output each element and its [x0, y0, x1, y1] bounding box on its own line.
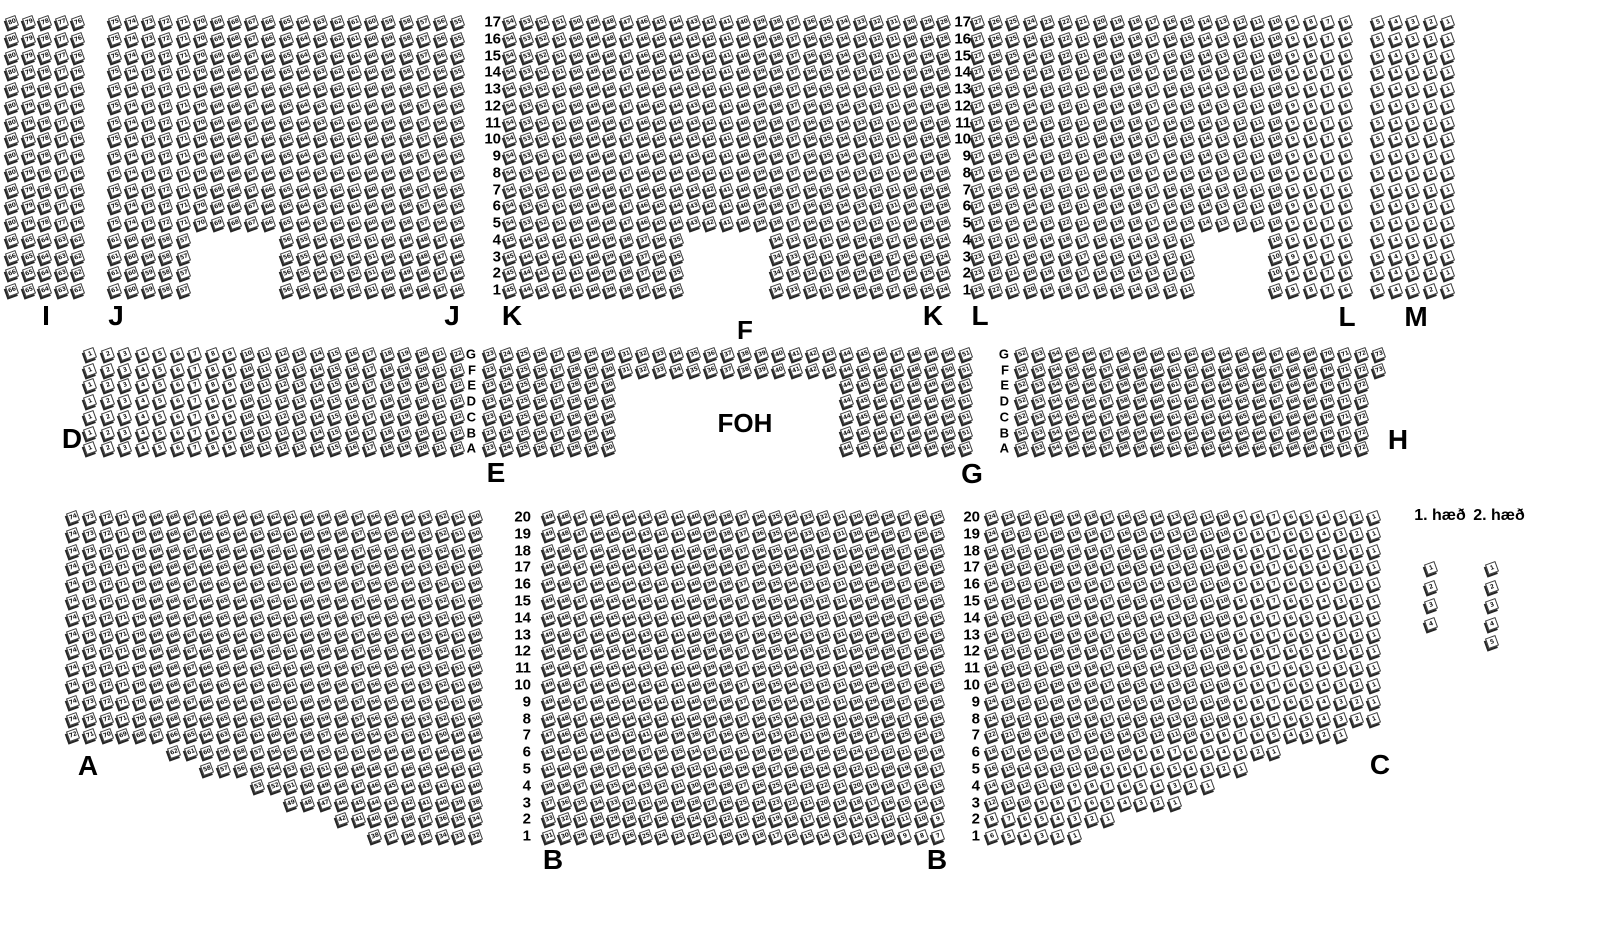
seat[interactable]: 53: [1032, 347, 1046, 361]
seat[interactable]: 64: [234, 695, 248, 709]
seat[interactable]: 68: [1287, 441, 1301, 455]
seat[interactable]: 47: [574, 712, 588, 726]
seat[interactable]: 47: [620, 15, 634, 29]
seat[interactable]: 36: [804, 48, 818, 62]
seat[interactable]: 39: [753, 48, 767, 62]
seat[interactable]: 22: [1058, 32, 1072, 46]
seat[interactable]: 73: [83, 678, 97, 692]
seat[interactable]: 15: [1181, 132, 1195, 146]
seat[interactable]: 4: [1388, 32, 1402, 46]
seat[interactable]: 23: [1002, 544, 1016, 558]
seat[interactable]: 60: [365, 182, 379, 196]
seat[interactable]: 42: [655, 594, 669, 608]
seat[interactable]: 47: [620, 32, 634, 46]
seat[interactable]: 67: [184, 644, 198, 658]
seat[interactable]: 53: [520, 15, 534, 29]
seat[interactable]: 16: [1163, 32, 1177, 46]
seat[interactable]: 6: [1284, 510, 1298, 524]
seat[interactable]: 32: [817, 628, 831, 642]
seat[interactable]: 68: [167, 527, 181, 541]
seat[interactable]: 6: [1338, 82, 1352, 96]
seat[interactable]: 21: [1076, 15, 1090, 29]
seat[interactable]: 8: [1251, 527, 1265, 541]
seat[interactable]: 74: [125, 65, 139, 79]
seat[interactable]: 79: [21, 48, 35, 62]
seat[interactable]: 46: [874, 347, 888, 361]
seat[interactable]: 28: [882, 527, 896, 541]
seat[interactable]: 21: [866, 762, 880, 776]
seat[interactable]: 32: [817, 577, 831, 591]
seat[interactable]: 73: [142, 199, 156, 213]
seat[interactable]: 42: [703, 182, 717, 196]
seat[interactable]: 16: [345, 363, 359, 377]
seat[interactable]: 27: [736, 779, 750, 793]
seat[interactable]: 49: [452, 728, 466, 742]
seat[interactable]: 10: [1018, 796, 1032, 810]
seat[interactable]: 78: [38, 132, 52, 146]
seat[interactable]: 44: [623, 661, 637, 675]
seat[interactable]: 41: [720, 65, 734, 79]
seat[interactable]: 55: [451, 65, 465, 79]
seat[interactable]: 29: [585, 394, 599, 408]
seat[interactable]: 67: [245, 65, 259, 79]
seat[interactable]: 21: [704, 829, 718, 843]
seat[interactable]: 9: [1234, 695, 1248, 709]
seat[interactable]: 31: [619, 363, 633, 377]
seat[interactable]: 4: [1388, 233, 1402, 247]
seat[interactable]: 60: [365, 216, 379, 230]
seat[interactable]: 33: [801, 577, 815, 591]
seat[interactable]: 66: [1253, 363, 1267, 377]
seat[interactable]: 4: [1317, 712, 1331, 726]
seat[interactable]: 46: [637, 82, 651, 96]
seat[interactable]: 66: [262, 48, 276, 62]
seat[interactable]: 16: [1163, 82, 1177, 96]
seat[interactable]: 57: [417, 216, 431, 230]
seat[interactable]: 11: [1035, 779, 1049, 793]
seat[interactable]: 4: [1317, 628, 1331, 642]
seat[interactable]: 19: [1068, 510, 1082, 524]
seat[interactable]: 79: [21, 149, 35, 163]
seat[interactable]: 20: [415, 410, 429, 424]
seat[interactable]: 68: [167, 594, 181, 608]
seat[interactable]: 35: [820, 82, 834, 96]
seat[interactable]: 44: [670, 48, 684, 62]
seat[interactable]: 24: [985, 661, 999, 675]
seat[interactable]: 15: [1134, 712, 1148, 726]
seat[interactable]: 16: [1163, 65, 1177, 79]
seat[interactable]: 27: [971, 15, 985, 29]
seat[interactable]: 3: [1406, 82, 1420, 96]
seat[interactable]: 29: [736, 762, 750, 776]
seat[interactable]: 2: [1350, 594, 1364, 608]
seat[interactable]: 64: [38, 266, 52, 280]
seat[interactable]: 41: [720, 199, 734, 213]
seat[interactable]: 70: [194, 149, 208, 163]
seat[interactable]: 67: [245, 32, 259, 46]
seat[interactable]: 19: [1111, 99, 1125, 113]
seat[interactable]: 38: [620, 283, 634, 297]
seat[interactable]: 12: [1085, 745, 1099, 759]
seat[interactable]: 44: [520, 233, 534, 247]
seat[interactable]: 41: [672, 695, 686, 709]
seat[interactable]: 61: [108, 233, 122, 247]
seat[interactable]: 37: [787, 149, 801, 163]
seat[interactable]: 31: [672, 779, 686, 793]
seat[interactable]: 60: [365, 115, 379, 129]
seat[interactable]: 43: [823, 347, 837, 361]
seat[interactable]: 25: [931, 594, 945, 608]
seat[interactable]: 65: [279, 166, 293, 180]
seat[interactable]: 63: [314, 32, 328, 46]
seat[interactable]: 60: [365, 82, 379, 96]
seat[interactable]: 80: [5, 65, 19, 79]
seat[interactable]: 16: [1163, 15, 1177, 29]
seat[interactable]: 18: [1058, 249, 1072, 263]
seat[interactable]: 27: [639, 812, 653, 826]
seat[interactable]: 38: [720, 544, 734, 558]
seat[interactable]: 19: [1068, 611, 1082, 625]
seat[interactable]: 56: [279, 249, 293, 263]
seat[interactable]: 17: [1146, 65, 1160, 79]
seat[interactable]: 72: [100, 544, 114, 558]
seat[interactable]: 4: [1284, 728, 1298, 742]
seat[interactable]: 28: [937, 132, 951, 146]
seat[interactable]: 31: [834, 644, 848, 658]
seat[interactable]: 8: [1303, 48, 1317, 62]
seat[interactable]: 63: [251, 712, 265, 726]
seat[interactable]: 2: [100, 378, 114, 392]
seat[interactable]: 2: [1423, 249, 1437, 263]
seat[interactable]: 23: [834, 762, 848, 776]
seat[interactable]: 43: [687, 48, 701, 62]
seat[interactable]: 53: [520, 166, 534, 180]
seat[interactable]: 57: [417, 32, 431, 46]
seat[interactable]: 55: [451, 48, 465, 62]
seat[interactable]: 64: [297, 48, 311, 62]
seat[interactable]: 36: [753, 712, 767, 726]
seat[interactable]: 45: [653, 99, 667, 113]
seat[interactable]: 26: [817, 745, 831, 759]
seat[interactable]: 43: [687, 65, 701, 79]
seat[interactable]: 5: [1371, 216, 1385, 230]
seat[interactable]: 5: [1371, 166, 1385, 180]
seat[interactable]: 68: [167, 577, 181, 591]
seat[interactable]: 1: [1424, 561, 1438, 575]
seat[interactable]: 64: [38, 233, 52, 247]
seat[interactable]: 54: [301, 745, 315, 759]
seat[interactable]: 24: [1023, 216, 1037, 230]
seat[interactable]: 63: [251, 560, 265, 574]
seat[interactable]: 43: [607, 728, 621, 742]
seat[interactable]: 1: [1267, 745, 1281, 759]
seat[interactable]: 28: [882, 628, 896, 642]
seat[interactable]: 55: [385, 661, 399, 675]
seat[interactable]: 76: [71, 99, 85, 113]
seat[interactable]: 6: [1284, 661, 1298, 675]
seat[interactable]: 3: [1234, 745, 1248, 759]
seat[interactable]: 48: [603, 15, 617, 29]
seat[interactable]: 40: [737, 216, 751, 230]
seat[interactable]: 14: [1128, 266, 1142, 280]
seat[interactable]: 31: [834, 560, 848, 574]
seat[interactable]: 26: [915, 695, 929, 709]
seat[interactable]: 49: [586, 132, 600, 146]
seat[interactable]: 33: [854, 48, 868, 62]
seat[interactable]: 70: [194, 15, 208, 29]
seat[interactable]: 63: [1202, 394, 1216, 408]
seat[interactable]: 57: [352, 544, 366, 558]
seat[interactable]: 64: [234, 544, 248, 558]
seat[interactable]: 18: [1085, 644, 1099, 658]
seat[interactable]: 18: [1128, 132, 1142, 146]
seat[interactable]: 26: [988, 149, 1002, 163]
seat[interactable]: 14: [1151, 527, 1165, 541]
seat[interactable]: 10: [1217, 661, 1231, 675]
seat[interactable]: 76: [71, 32, 85, 46]
seat[interactable]: 60: [1151, 441, 1165, 455]
seat[interactable]: 33: [653, 363, 667, 377]
seat[interactable]: 65: [279, 199, 293, 213]
seat[interactable]: 48: [908, 378, 922, 392]
seat[interactable]: 15: [1111, 283, 1125, 297]
seat[interactable]: 13: [1134, 728, 1148, 742]
seat[interactable]: 28: [870, 249, 884, 263]
seat[interactable]: 32: [817, 527, 831, 541]
seat[interactable]: 60: [301, 661, 315, 675]
seat[interactable]: 25: [931, 661, 945, 675]
seat[interactable]: 14: [1198, 132, 1212, 146]
seat[interactable]: 19: [398, 410, 412, 424]
seat[interactable]: 4: [1388, 166, 1402, 180]
seat[interactable]: 46: [874, 378, 888, 392]
seat[interactable]: 14: [310, 410, 324, 424]
seat[interactable]: 49: [385, 745, 399, 759]
seat[interactable]: 15: [1134, 594, 1148, 608]
seat[interactable]: 13: [1168, 661, 1182, 675]
seat[interactable]: 73: [142, 15, 156, 29]
seat[interactable]: 12: [882, 812, 896, 826]
seat[interactable]: 9: [1234, 594, 1248, 608]
seat[interactable]: 73: [142, 132, 156, 146]
seat[interactable]: 5: [153, 425, 167, 439]
seat[interactable]: 15: [1035, 745, 1049, 759]
seat[interactable]: 44: [840, 441, 854, 455]
seat[interactable]: 54: [1049, 441, 1063, 455]
seat[interactable]: 71: [177, 32, 191, 46]
seat[interactable]: 2: [100, 347, 114, 361]
seat[interactable]: 2: [1424, 579, 1438, 593]
seat[interactable]: 65: [217, 611, 231, 625]
seat[interactable]: 16: [1018, 745, 1032, 759]
seat[interactable]: 34: [785, 695, 799, 709]
seat[interactable]: 72: [100, 577, 114, 591]
seat[interactable]: 17: [363, 441, 377, 455]
seat[interactable]: 72: [100, 695, 114, 709]
seat[interactable]: 11: [1201, 611, 1215, 625]
seat[interactable]: 52: [436, 510, 450, 524]
seat[interactable]: 16: [345, 347, 359, 361]
seat[interactable]: 48: [402, 745, 416, 759]
seat[interactable]: 10: [1217, 560, 1231, 574]
seat[interactable]: 46: [591, 544, 605, 558]
seat[interactable]: 40: [688, 577, 702, 591]
seat[interactable]: 49: [586, 182, 600, 196]
seat[interactable]: 19: [398, 378, 412, 392]
seat[interactable]: 7: [1321, 132, 1335, 146]
seat[interactable]: 49: [399, 283, 413, 297]
seat[interactable]: 40: [436, 796, 450, 810]
seat[interactable]: 47: [434, 266, 448, 280]
seat[interactable]: 52: [301, 762, 315, 776]
seat[interactable]: 50: [570, 99, 584, 113]
seat[interactable]: 40: [586, 233, 600, 247]
seat[interactable]: 13: [293, 441, 307, 455]
seat[interactable]: 25: [931, 560, 945, 574]
seat[interactable]: 2: [1423, 99, 1437, 113]
seat[interactable]: 43: [419, 779, 433, 793]
seat[interactable]: 16: [1118, 544, 1132, 558]
seat[interactable]: 73: [83, 544, 97, 558]
seat[interactable]: 21: [1002, 728, 1016, 742]
seat[interactable]: 39: [704, 628, 718, 642]
seat[interactable]: 21: [1035, 544, 1049, 558]
seat[interactable]: 14: [1198, 182, 1212, 196]
seat[interactable]: 51: [318, 762, 332, 776]
seat[interactable]: 1: [1367, 611, 1381, 625]
seat[interactable]: 78: [38, 182, 52, 196]
seat[interactable]: 23: [1041, 99, 1055, 113]
seat[interactable]: 58: [1117, 410, 1131, 424]
seat[interactable]: 11: [1201, 527, 1215, 541]
seat[interactable]: 12: [1233, 115, 1247, 129]
seat[interactable]: 46: [368, 779, 382, 793]
seat[interactable]: 35: [820, 149, 834, 163]
seat[interactable]: 49: [399, 266, 413, 280]
seat[interactable]: 7: [931, 829, 945, 843]
seat[interactable]: 30: [850, 712, 864, 726]
seat[interactable]: 62: [71, 249, 85, 263]
seat[interactable]: 1: [1101, 812, 1115, 826]
seat[interactable]: 13: [1168, 560, 1182, 574]
seat[interactable]: 31: [574, 812, 588, 826]
seat[interactable]: 53: [520, 99, 534, 113]
seat[interactable]: 16: [1118, 560, 1132, 574]
seat[interactable]: 16: [1093, 283, 1107, 297]
seat[interactable]: 25: [931, 628, 945, 642]
seat[interactable]: 80: [5, 182, 19, 196]
seat[interactable]: 38: [720, 712, 734, 726]
seat[interactable]: 66: [1253, 378, 1267, 392]
seat[interactable]: 59: [382, 132, 396, 146]
seat[interactable]: 12: [1233, 48, 1247, 62]
seat[interactable]: 71: [116, 695, 130, 709]
seat[interactable]: 3: [118, 425, 132, 439]
seat[interactable]: 65: [21, 283, 35, 297]
seat[interactable]: 73: [142, 216, 156, 230]
seat[interactable]: 54: [314, 266, 328, 280]
seat[interactable]: 11: [1201, 594, 1215, 608]
seat[interactable]: 55: [352, 728, 366, 742]
seat[interactable]: 74: [66, 544, 80, 558]
seat[interactable]: 37: [607, 762, 621, 776]
seat[interactable]: 18: [1128, 32, 1142, 46]
seat[interactable]: 52: [536, 32, 550, 46]
seat[interactable]: 58: [234, 745, 248, 759]
seat[interactable]: 66: [167, 728, 181, 742]
seat[interactable]: 30: [904, 149, 918, 163]
seat[interactable]: 35: [820, 132, 834, 146]
seat[interactable]: 54: [402, 661, 416, 675]
seat[interactable]: 67: [184, 594, 198, 608]
seat[interactable]: 20: [1023, 266, 1037, 280]
seat[interactable]: 47: [620, 115, 634, 129]
seat[interactable]: 19: [1068, 577, 1082, 591]
seat[interactable]: 7: [1321, 99, 1335, 113]
seat[interactable]: 45: [607, 678, 621, 692]
seat[interactable]: 69: [1304, 441, 1318, 455]
seat[interactable]: 15: [834, 812, 848, 826]
seat[interactable]: 6: [1338, 99, 1352, 113]
seat[interactable]: 13: [1168, 695, 1182, 709]
seat[interactable]: 54: [402, 560, 416, 574]
seat[interactable]: 80: [5, 15, 19, 29]
seat[interactable]: 29: [920, 48, 934, 62]
seat[interactable]: 23: [971, 283, 985, 297]
seat[interactable]: 76: [71, 115, 85, 129]
seat[interactable]: 1: [1367, 594, 1381, 608]
seat[interactable]: 8: [1303, 99, 1317, 113]
seat[interactable]: 27: [898, 678, 912, 692]
seat[interactable]: 54: [402, 544, 416, 558]
seat[interactable]: 38: [770, 216, 784, 230]
seat[interactable]: 25: [898, 728, 912, 742]
seat[interactable]: 68: [167, 678, 181, 692]
seat[interactable]: 47: [574, 678, 588, 692]
seat[interactable]: 62: [268, 644, 282, 658]
seat[interactable]: 54: [503, 48, 517, 62]
seat[interactable]: 56: [279, 233, 293, 247]
seat[interactable]: 2: [1085, 812, 1099, 826]
seat[interactable]: 30: [904, 65, 918, 79]
seat[interactable]: 41: [452, 779, 466, 793]
seat[interactable]: 7: [188, 394, 202, 408]
seat[interactable]: 28: [937, 32, 951, 46]
seat[interactable]: 40: [655, 728, 669, 742]
seat[interactable]: 14: [310, 441, 324, 455]
seat[interactable]: 14: [817, 829, 831, 843]
seat[interactable]: 43: [639, 628, 653, 642]
seat[interactable]: 38: [620, 266, 634, 280]
seat[interactable]: 37: [736, 678, 750, 692]
seat[interactable]: 15: [328, 378, 342, 392]
seat[interactable]: 59: [382, 199, 396, 213]
seat[interactable]: 13: [1146, 249, 1160, 263]
seat[interactable]: 64: [234, 560, 248, 574]
seat[interactable]: 38: [469, 796, 483, 810]
seat[interactable]: 24: [985, 611, 999, 625]
seat[interactable]: 73: [83, 510, 97, 524]
seat[interactable]: 64: [1219, 410, 1233, 424]
seat[interactable]: 4: [1388, 249, 1402, 263]
seat[interactable]: 23: [1041, 115, 1055, 129]
seat[interactable]: 25: [639, 829, 653, 843]
seat[interactable]: 63: [251, 510, 265, 524]
seat[interactable]: 27: [971, 182, 985, 196]
seat[interactable]: 27: [898, 544, 912, 558]
seat[interactable]: 13: [1146, 283, 1160, 297]
seat[interactable]: 18: [1085, 510, 1099, 524]
